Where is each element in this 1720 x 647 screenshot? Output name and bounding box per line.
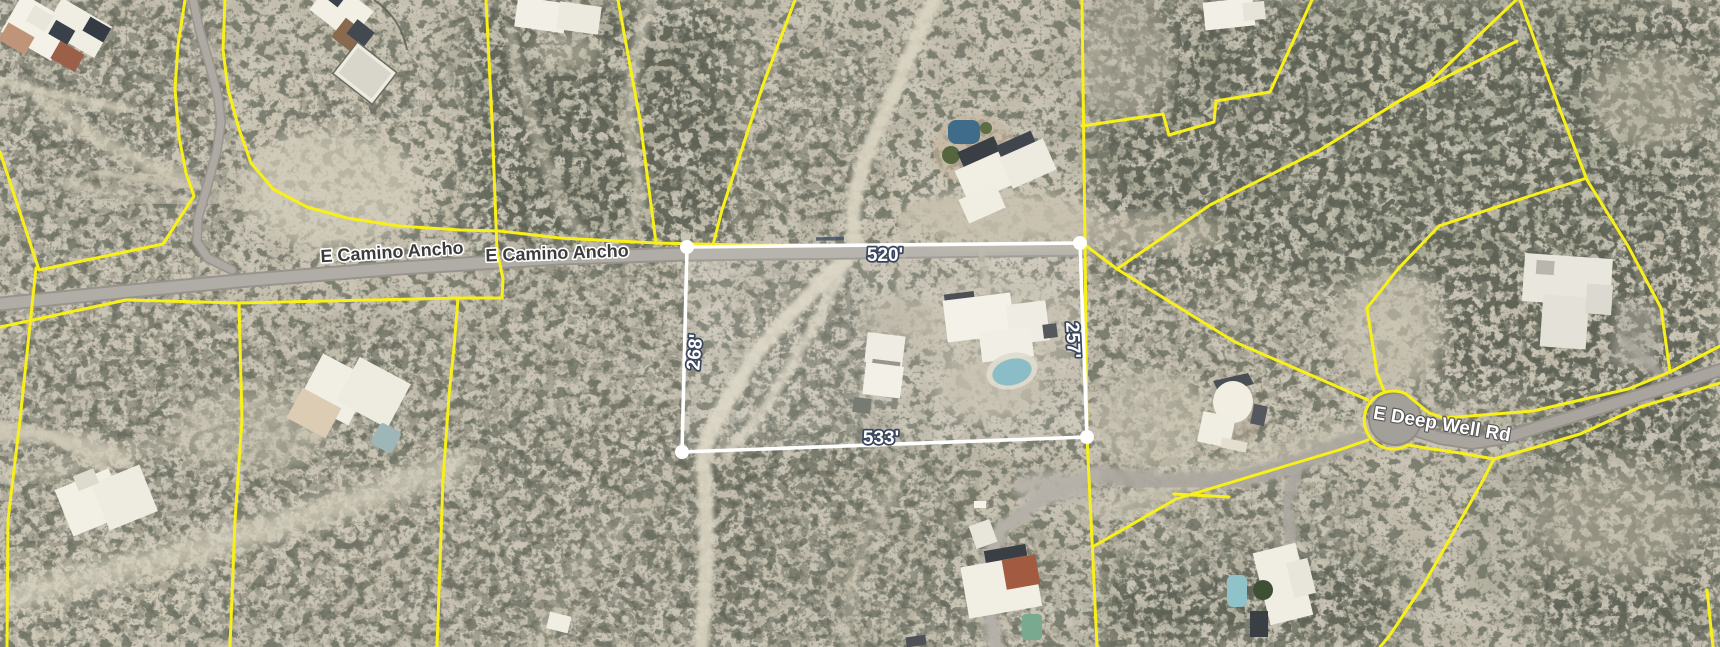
- svg-text:520': 520': [867, 245, 903, 266]
- svg-text:257': 257': [1061, 321, 1084, 358]
- svg-text:533': 533': [863, 428, 899, 449]
- svg-text:268': 268': [683, 333, 707, 371]
